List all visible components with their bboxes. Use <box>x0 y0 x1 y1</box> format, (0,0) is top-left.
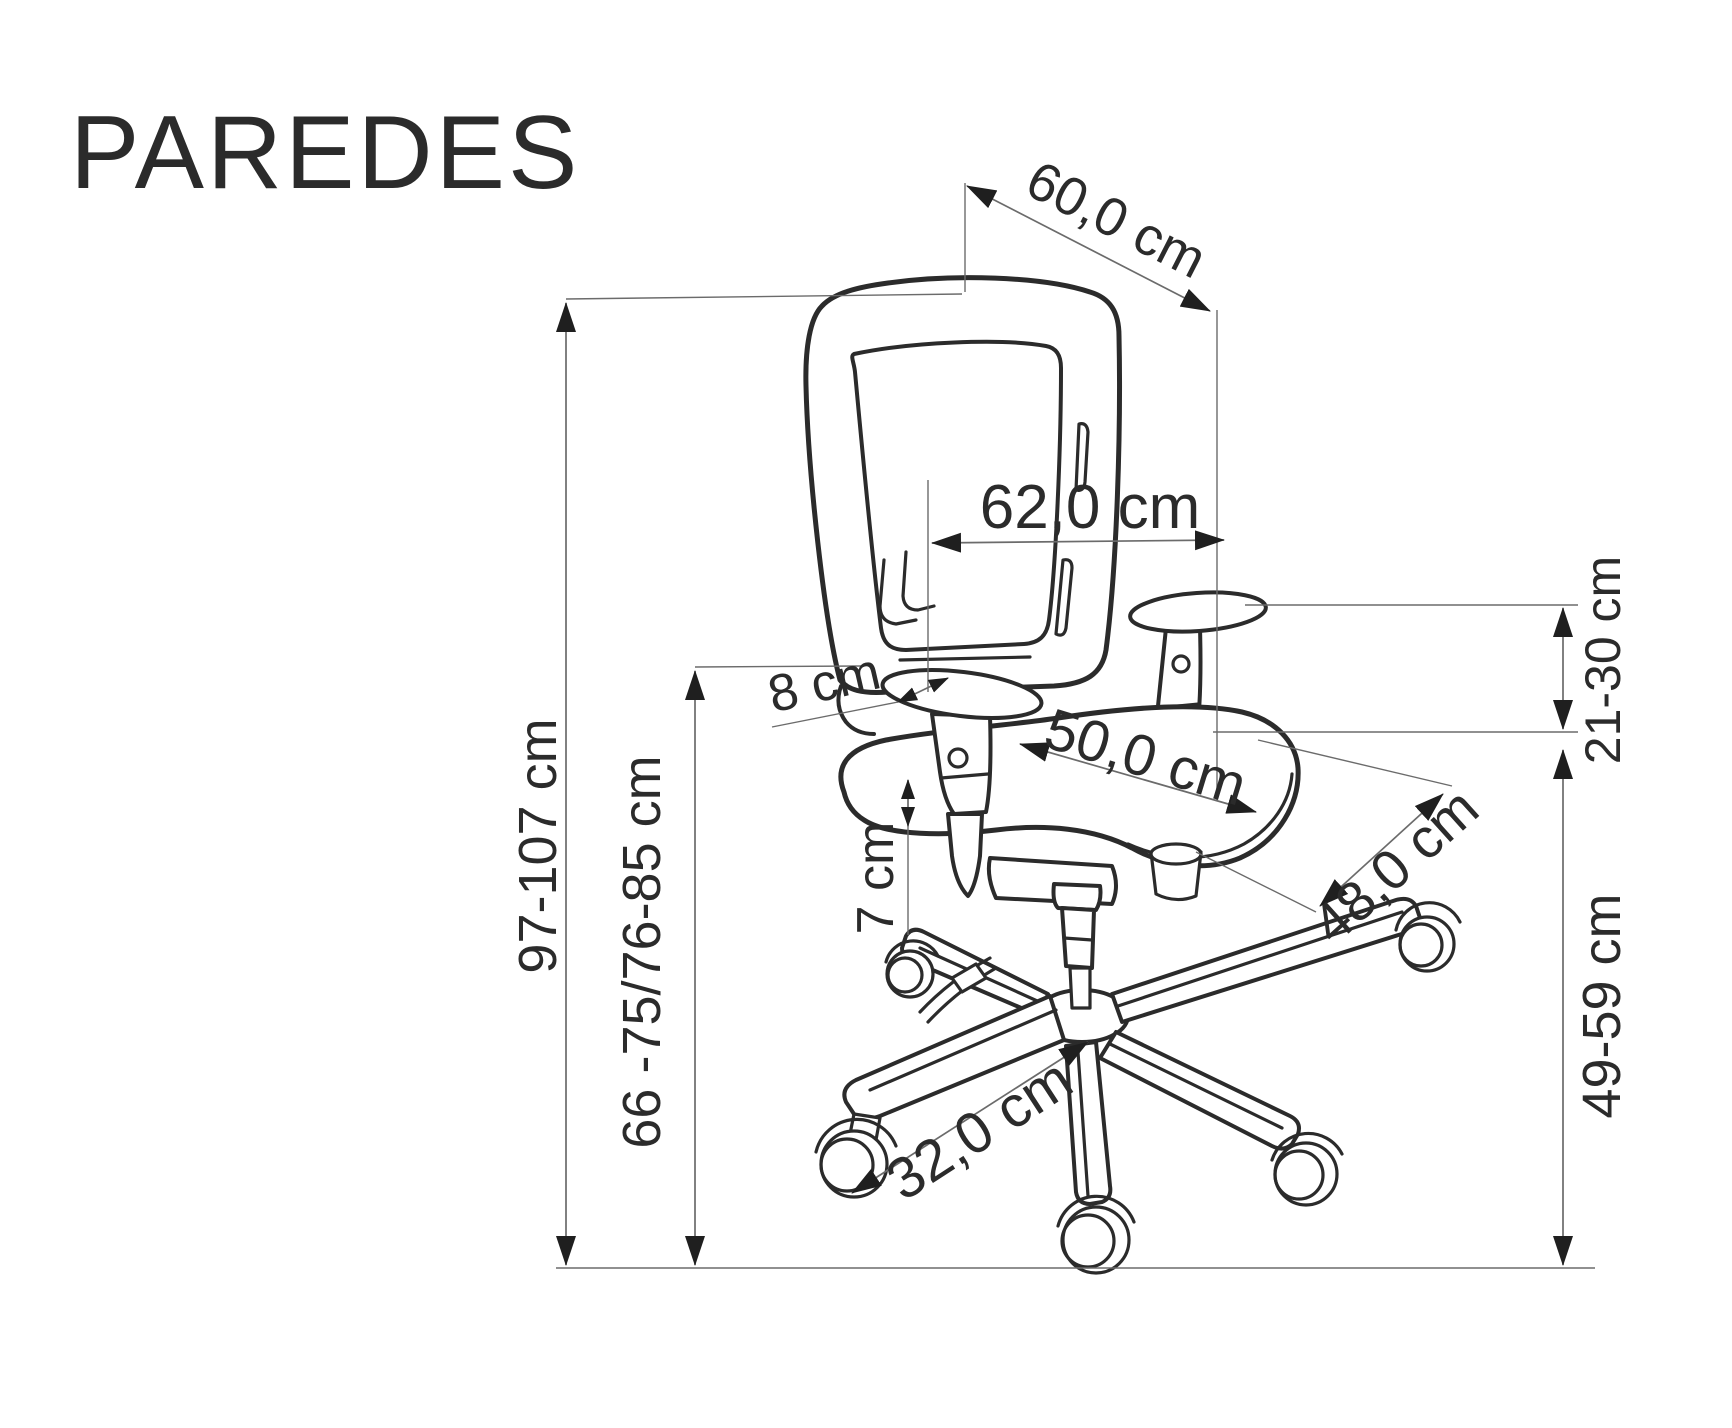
base <box>816 899 1460 1273</box>
lift-range-label: 7 cm <box>847 822 905 935</box>
product-title: PAREDES <box>70 95 580 211</box>
overall-height-label: 97-107 cm <box>508 718 568 973</box>
armrest-right-pad <box>1129 588 1267 635</box>
backrest-depth-label: 60,0 cm <box>1017 150 1215 291</box>
backrest-bottom-height-label: 66 -75/76-85 cm <box>612 755 672 1148</box>
seat-height-label: 49-59 cm <box>1572 893 1632 1118</box>
chair-dimension-diagram: PAREDES 60,0 cm 62,0 cm 8 cm 7 cm 50,0 c… <box>0 0 1732 1428</box>
dimension-armrest-height <box>1213 605 1578 732</box>
armrest-height-label: 21-30 cm <box>1575 556 1631 764</box>
armrest-pad-label: 8 cm <box>763 643 886 725</box>
armrest-left-bracket <box>948 814 982 896</box>
gas-lift <box>1054 884 1101 910</box>
overall-width-label: 62,0 cm <box>980 473 1201 542</box>
